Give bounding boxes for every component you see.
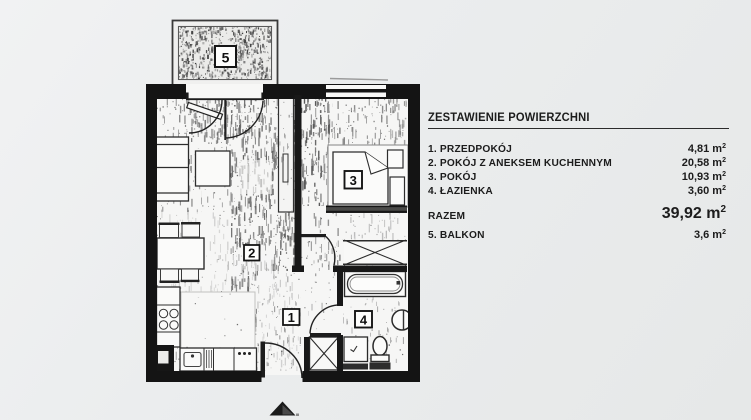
svg-text:5: 5 [222,50,230,66]
svg-text:2: 2 [248,246,255,261]
svg-text:4: 4 [360,312,368,327]
svg-text:1: 1 [288,310,295,325]
svg-text:3: 3 [350,173,357,188]
